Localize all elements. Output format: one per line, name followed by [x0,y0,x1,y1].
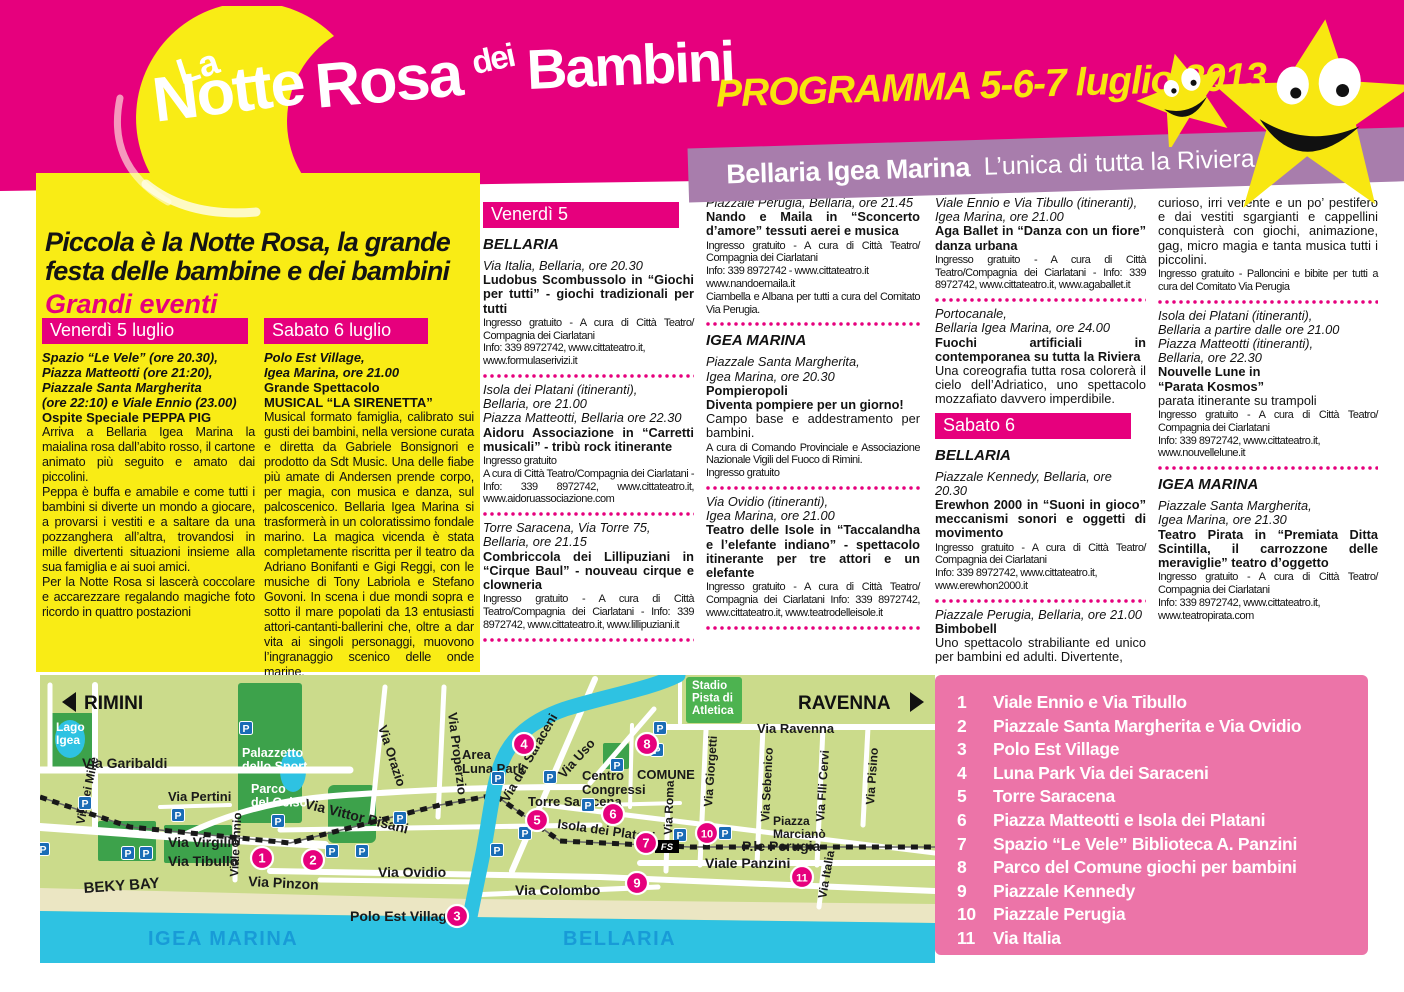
event-title: Nouvelle Lune in“Parata Kosmos” [1158,365,1378,393]
event-title: Erewhon 2000 in “Suoni in gioco” meccani… [935,498,1146,541]
fs-station-badge: FS [655,840,679,853]
map-marker-3: 3 [446,905,468,927]
svg-text:P: P [142,848,149,860]
program-column-3: Viale Ennio e Via Tibullo (itineranti),I… [935,196,1146,665]
map-label: Palazzettodello Sport [242,746,308,774]
venue-line: Igea Marina, ore 20.30 [706,370,920,384]
event-body: parata itinerante su trampoli [1158,394,1378,408]
svg-text:P: P [721,828,728,840]
legend-row: 7Spazio “Le Vele” Biblioteca A. Panzini [935,833,1368,857]
legend-number: 5 [935,785,993,809]
svg-text:4: 4 [520,736,528,751]
event-info: Ingresso gratuito - A cura di Città Teat… [1158,409,1378,460]
map-label: Viale Panzini [705,855,790,871]
city-label: BELLARIA [483,236,694,254]
legend-label: Piazzale Kennedy [993,880,1368,904]
svg-text:11: 11 [796,872,808,884]
legend-row: 1Viale Ennio e Via Tibullo [935,691,1368,715]
map-label: BELLARIA [563,928,676,950]
event-item: Portocanale,Bellaria Igea Marina, ore 24… [935,307,1146,406]
parking-icon: P [611,759,624,772]
legend-number: 7 [935,833,993,857]
event-item: Viale Ennio e Via Tibullo (itineranti),I… [935,196,1146,292]
parking-icon: P [674,829,687,842]
parking-icon: P [240,722,253,735]
venue-line: Bellaria, ore 22.30 [1158,351,1378,365]
svg-text:6: 6 [609,806,616,821]
svg-text:P: P [493,845,500,857]
venue-line: Polo Est Village, [264,350,474,365]
legend-row: 5Torre Saracena [935,785,1368,809]
dotted-separator [1158,466,1378,470]
venue-line: Spazio “Le Vele” (ore 20.30), [42,350,255,365]
svg-text:7: 7 [642,835,649,850]
intro-paragraphs: Musical formato famiglia, calibrato sui … [264,410,474,680]
svg-text:P: P [124,848,131,860]
svg-text:P: P [584,800,591,812]
map-label: Via Roma [661,780,677,835]
program-column-2: Piazzale Perugia, Bellaria, ore 21.45Nan… [706,196,920,635]
event-info: Ingresso gratuito - A cura di Città Teat… [483,593,694,631]
svg-text:3: 3 [453,908,460,923]
dotted-separator [483,638,694,642]
legend-number: 1 [935,691,993,715]
legend-label: Torre Saracena [993,785,1368,809]
map-label: Via Ravenna [757,721,835,736]
event-body: Uno spettacolo strabiliante ed unico per… [935,636,1146,664]
parking-icon: P [356,845,369,858]
legend-row: 3Polo Est Village [935,738,1368,762]
event-title: Nando e Maila in “Sconcerto d’amore” tes… [706,210,920,238]
venue-line: Isola dei Platani (itineranti), [483,383,694,397]
legend-row: 10Piazzale Perugia [935,903,1368,927]
direction-label: RIMINI [84,693,143,714]
venue-line: Piazzale Santa Margherita [42,380,255,395]
event-info: Ingresso gratuito - Palloncini e bibite … [1158,268,1378,294]
event-venue: Piazzale Santa Margherita,Igea Marina, o… [1158,499,1378,527]
intro-column-sabato: Sabato 6 luglio Polo Est Village,Igea Ma… [264,318,474,694]
svg-text:P: P [396,813,403,825]
map-label: IGEA MARINA [148,928,298,950]
parking-icon: P [172,809,185,822]
map-marker-7: 7 [635,832,657,854]
event-item: Isola dei Platani (itineranti),Bellaria … [1158,309,1378,461]
event-info: Ingresso gratuito - A cura di Città Teat… [706,581,920,619]
parking-icon: P [491,844,504,857]
map-marker-10: 10 [696,822,718,844]
legend-number: 8 [935,856,993,880]
venue-line: Bellaria a partire dalle ore 21.00 [1158,323,1378,337]
legend-number: 11 [935,927,993,951]
map-marker-8: 8 [636,733,658,755]
event-item: Piazzale Santa Margherita,Igea Marina, o… [1158,499,1378,622]
svg-text:P: P [521,828,528,840]
flyer-page: La Notte Rosa dei Bambini PROGRAMMA 5-6-… [0,0,1404,992]
event-info: Ingresso gratuito - A cura di Città Teat… [706,240,920,317]
legend-label: Piazzale Perugia [993,903,1368,927]
venue-line: Piazzale Santa Margherita, [1158,499,1378,513]
map-marker-2: 2 [302,849,324,871]
svg-text:9: 9 [633,875,640,890]
venue-line: Bellaria, ore 21.00 [483,397,694,411]
event-title: Aga Ballet in “Danza con un fiore” danza… [935,224,1146,252]
venue-line: Isola dei Platani (itineranti), [1158,309,1378,323]
legend-number: 6 [935,809,993,833]
venue-line: Piazza Matteotti (itineranti), [1158,337,1378,351]
legend-row: 11Via Italia [935,927,1368,951]
legend-number: 2 [935,715,993,739]
intro-column-venerdi: Venerdì 5 luglio Spazio “Le Vele” (ore 2… [42,318,255,620]
venue-line: Piazzale Santa Margherita, [706,355,920,369]
event-body: Campo base e addestramento per bambini. [706,412,920,440]
venue-line: Piazza Matteotti, Bellaria ore 22.30 [483,411,694,425]
venue-line: Piazza Matteotti (ore 21:20), [42,365,255,380]
fs-badge-label: FS [661,842,674,853]
star-big-icon [1208,16,1404,231]
svg-text:P: P [40,844,47,856]
svg-text:P: P [328,846,335,858]
intro-subtitle: Grandi eventi [45,289,218,320]
event-venue: Piazzale Kennedy, Bellaria, ore 20.30 [935,470,1146,498]
venue-line: Igea Marina, ore 21.00 [264,365,474,380]
logo-word-bambini: Bambini [525,28,735,102]
parking-icon: P [140,847,153,860]
map-label: Via Ovidio [378,864,446,880]
map-marker-9: 9 [626,872,648,894]
map-label: Via Colombo [515,882,600,898]
legend-number: 3 [935,738,993,762]
legend-label: Luna Park Via dei Saraceni [993,762,1368,786]
legend-label: Parco del Comune giochi per bambini [993,856,1368,880]
event-info: Ingresso gratuito - A cura di Città Teat… [935,254,1146,292]
event-title: Teatro delle Isole in “Taccalandha e l’e… [706,523,920,580]
intro-paragraph: Musical formato famiglia, calibrato sui … [264,410,474,680]
legend-row: 6Piazza Matteotti e Isola dei Platani [935,809,1368,833]
day-header-bar: Sabato 6 luglio [264,318,428,344]
map-label: P.le Perugia [742,838,821,854]
event-title: Teatro Pirata in “Premiata Ditta Scintil… [1158,528,1378,571]
parking-icon: P [544,771,557,784]
svg-text:5: 5 [533,812,540,827]
banner-city: Bellaria Igea Marina [726,152,970,190]
venue-line: Piazzale Kennedy, Bellaria, ore 20.30 [935,470,1146,498]
map-label: Via Pertini [168,789,231,804]
svg-text:10: 10 [701,828,713,840]
legend-label: Spazio “Le Vele” Biblioteca A. Panzini [993,833,1368,857]
event-title: Ludobus Scombussolo in “Giochi per tutti… [483,273,694,316]
event-item: Piazzale Perugia, Bellaria, ore 21.45Nan… [706,196,920,316]
dotted-separator [935,599,1146,603]
venue-line: (ore 22:10) e Viale Ennio (23.00) [42,395,255,410]
legend-label: Via Italia [993,927,1368,951]
svg-text:P: P [494,773,501,785]
event-title: PompieropoliDiventa pompiere per un gior… [706,384,920,412]
venue-line: Bellaria, ore 21.15 [483,535,694,549]
event-venue: Viale Ennio e Via Tibullo (itineranti),I… [935,196,1146,224]
intro-highlight: Ospite Speciale PEPPA PIG [42,410,255,425]
intro-venue-list: Spazio “Le Vele” (ore 20.30),Piazza Matt… [42,350,255,410]
map-marker-6: 6 [602,803,624,825]
day-header-bar: Venerdì 5 [483,202,679,228]
venue-line: Torre Saracena, Via Torre 75, [483,521,694,535]
dotted-separator [706,486,920,490]
svg-text:P: P [358,846,365,858]
dotted-separator [935,298,1146,302]
svg-text:P: P [274,816,281,828]
logo-word-dei: dei [468,36,517,82]
legend-row: 9Piazzale Kennedy [935,880,1368,904]
event-item: Via Italia, Bellaria, ore 20.30Ludobus S… [483,259,694,368]
event-info: Ingresso gratuito - A cura di Città Teat… [935,542,1146,593]
logo-word-notte: Notte [149,47,308,137]
program-column-4: curioso, irri verente e un po’ pestifero… [1158,196,1378,622]
city-map: LagoIgeaVia GaribaldiVia dei MilleVia Pe… [40,675,935,963]
svg-text:P: P [656,723,663,735]
legend-number: 4 [935,762,993,786]
dotted-separator [483,374,694,378]
map-label: Polo Est Village [350,908,455,924]
event-item: Piazzale Perugia, Bellaria, ore 21.00Bim… [935,608,1146,665]
intro-paragraph: Peppa è buffa e amabile e come tutti i b… [42,485,255,575]
event-venue: Via Italia, Bellaria, ore 20.30 [483,259,694,273]
parking-icon: P [654,722,667,735]
event-venue: Via Ovidio (itineranti),Igea Marina, ore… [706,495,920,523]
dotted-separator [706,322,920,326]
parking-icon: P [582,799,595,812]
event-venue: Piazzale Perugia, Bellaria, ore 21.00 [935,608,1146,622]
dotted-separator [706,626,920,630]
dotted-separator [483,512,694,516]
map-marker-1: 1 [251,847,273,869]
program-column-1: Venerdì 5BELLARIAVia Italia, Bellaria, o… [483,196,694,647]
direction-label: RAVENNA [798,693,891,714]
svg-text:8: 8 [643,736,650,751]
city-label: IGEA MARINA [1158,476,1378,494]
intro-venue-list: Polo Est Village,Igea Marina, ore 21.00 [264,350,474,380]
map-legend: 1Viale Ennio e Via Tibullo2Piazzale Sant… [935,675,1368,955]
svg-text:P: P [81,798,88,810]
svg-text:2: 2 [309,852,316,867]
legend-row: 4Luna Park Via dei Saraceni [935,762,1368,786]
dotted-separator [1158,300,1378,304]
city-label: IGEA MARINA [706,332,920,350]
venue-line: Portocanale, [935,307,1146,321]
venue-line: Viale Ennio e Via Tibullo (itineranti), [935,196,1146,210]
venue-line: Via Italia, Bellaria, ore 20.30 [483,259,694,273]
legend-label: Piazzale Santa Margherita e Via Ovidio [993,715,1368,739]
svg-text:1: 1 [258,850,265,865]
city-label: BELLARIA [935,447,1146,465]
event-info: Ingresso gratuitoA cura di Città Teatro/… [483,455,694,506]
intro-highlight: Grande Spettacolo [264,380,474,395]
parking-icon: P [79,797,92,810]
intro-highlight: MUSICAL “LA SIRENETTA” [264,395,474,410]
event-item: Torre Saracena, Via Torre 75,Bellaria, o… [483,521,694,631]
venue-line: Piazzale Perugia, Bellaria, ore 21.00 [935,608,1146,622]
venue-line: Bellaria Igea Marina, ore 24.00 [935,321,1146,335]
parking-icon: P [492,772,505,785]
event-title: Fuochi artificiali in contemporanea su t… [935,336,1146,364]
day-header-bar: Sabato 6 [935,413,1131,439]
parking-icon: P [394,812,407,825]
event-venue: Portocanale,Bellaria Igea Marina, ore 24… [935,307,1146,335]
event-item: Piazzale Kennedy, Bellaria, ore 20.30Ere… [935,470,1146,593]
parking-icon: P [122,847,135,860]
map-marker-4: 4 [513,733,535,755]
legend-number: 10 [935,903,993,927]
venue-line: Igea Marina, ore 21.30 [1158,513,1378,527]
legend-row: 2Piazzale Santa Margherita e Via Ovidio [935,715,1368,739]
legend-label: Viale Ennio e Via Tibullo [993,691,1368,715]
event-venue: Isola dei Platani (itineranti),Bellaria,… [483,383,694,426]
legend-label: Polo Est Village [993,738,1368,762]
event-title: Bimbobell [935,622,1146,636]
svg-text:P: P [546,772,553,784]
map-marker-11: 11 [791,866,813,888]
event-title: Combriccola dei Lillipuziani in “Cirque … [483,550,694,593]
venue-line: Igea Marina, ore 21.00 [935,210,1146,224]
venue-line: Via Ovidio (itineranti), [706,495,920,509]
event-info: Ingresso gratuito - A cura di Città Teat… [1158,571,1378,622]
intro-paragraph: Per la Notte Rosa si lascerà coccolare e… [42,575,255,620]
event-venue: Piazzale Santa Margherita,Igea Marina, o… [706,355,920,383]
parking-icon: P [719,827,732,840]
event-venue: Isola dei Platani (itineranti),Bellaria … [1158,309,1378,366]
legend-label: Piazza Matteotti e Isola dei Platani [993,809,1368,833]
map-svg: LagoIgeaVia GaribaldiVia dei MilleVia Pe… [40,675,935,963]
parking-icon: P [326,845,339,858]
logo-word-rosa: Rosa [312,38,464,122]
parking-icon: P [40,843,50,856]
legend-row: 8Parco del Comune giochi per bambini [935,856,1368,880]
intro-paragraphs: Arriva a Bellaria Igea Marina la maialin… [42,425,255,620]
event-body: Una coreografia tutta rosa colorerà il c… [935,364,1146,407]
event-info: A cura di Comando Provinciale e Associaz… [706,442,920,480]
venue-line: Igea Marina, ore 21.00 [706,509,920,523]
intro-panel: Piccola è la Notte Rosa, la grande festa… [36,173,480,672]
svg-text:P: P [242,723,249,735]
parking-icon: P [272,815,285,828]
event-title: Aidoru Associazione in “Carretti musical… [483,426,694,454]
event-item: Piazzale Santa Margherita,Igea Marina, o… [706,355,920,480]
intro-title-line2: festa delle bambine e dei bambini [45,257,450,286]
day-header-bar: Venerdì 5 luglio [42,318,248,344]
event-venue: Torre Saracena, Via Torre 75,Bellaria, o… [483,521,694,549]
svg-text:P: P [174,810,181,822]
map-marker-5: 5 [526,809,548,831]
event-info: Ingresso gratuito - A cura di Città Teat… [483,317,694,368]
event-item: Isola dei Platani (itineranti),Bellaria,… [483,383,694,506]
map-label: COMUNE [637,767,695,782]
intro-paragraph: Arriva a Bellaria Igea Marina la maialin… [42,425,255,485]
svg-text:P: P [613,760,620,772]
legend-number: 9 [935,880,993,904]
event-item: Via Ovidio (itineranti),Igea Marina, ore… [706,495,920,620]
